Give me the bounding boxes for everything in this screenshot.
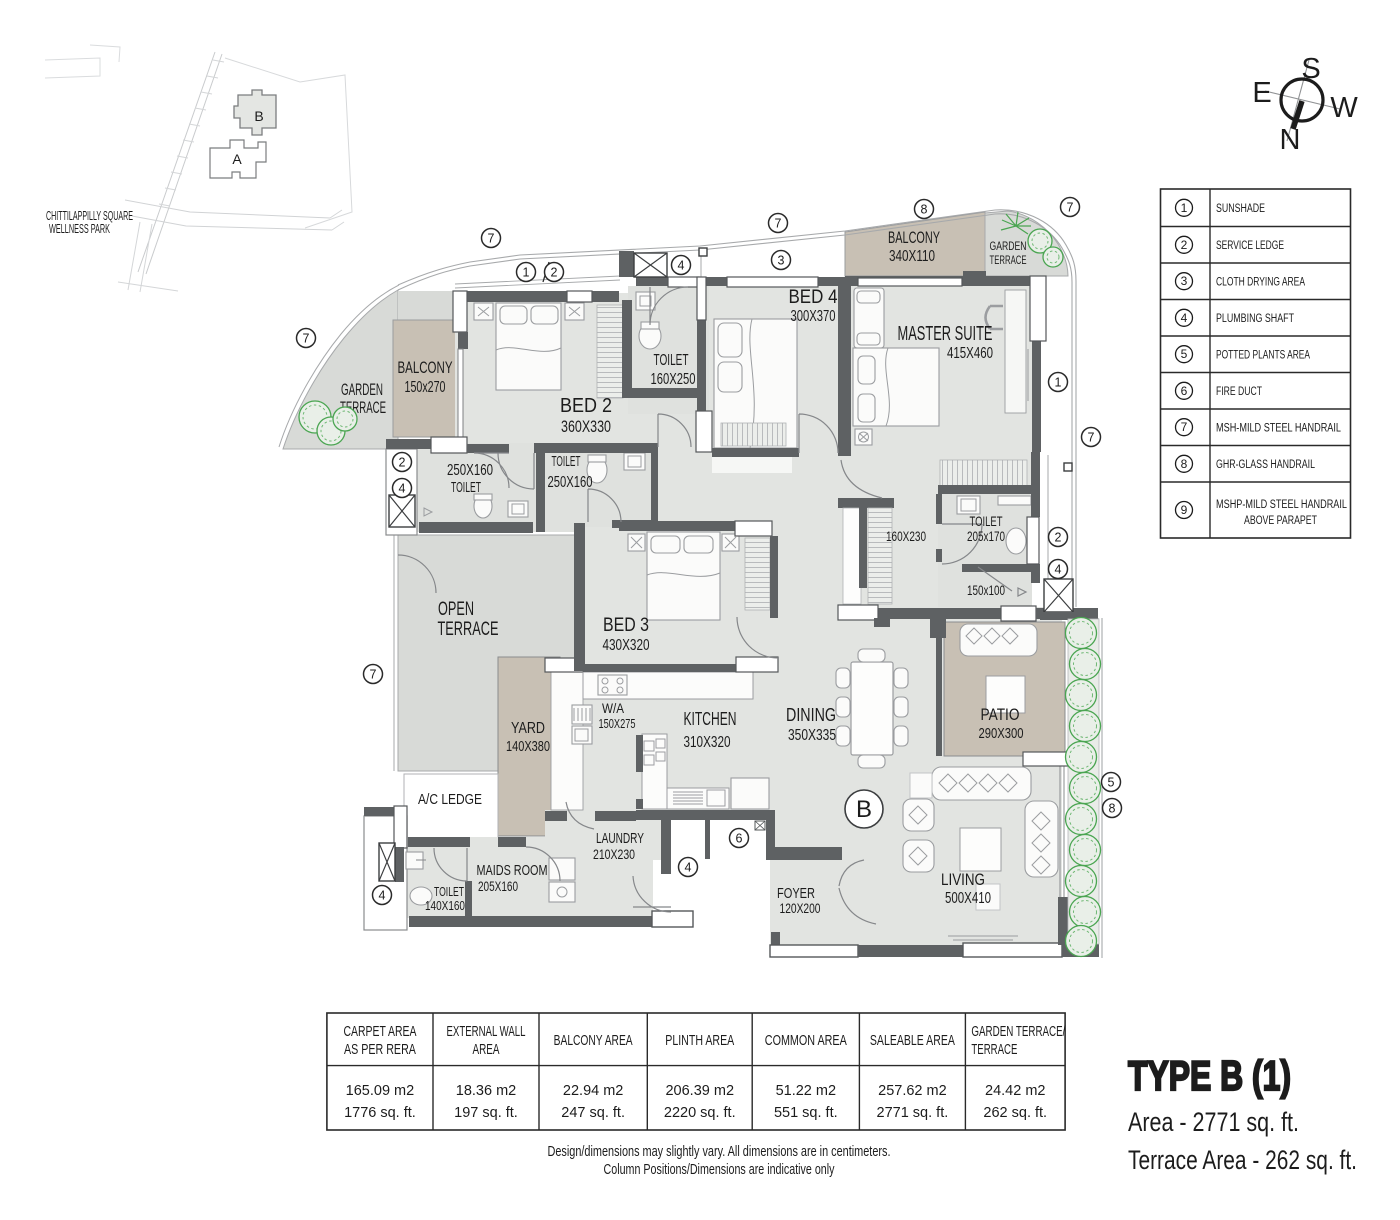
svg-text:BALCONY AREA: BALCONY AREA	[554, 1033, 633, 1049]
svg-text:140X160: 140X160	[425, 899, 465, 913]
svg-text:150x100: 150x100	[967, 583, 1005, 598]
svg-text:7: 7	[370, 667, 377, 681]
svg-text:SUNSHADE: SUNSHADE	[1216, 201, 1265, 215]
svg-text:BALCONY: BALCONY	[888, 229, 940, 247]
svg-text:Design/dimensions may slightly: Design/dimensions may slightly vary. All…	[548, 1143, 891, 1160]
svg-text:PLINTH AREA: PLINTH AREA	[665, 1033, 734, 1049]
svg-text:FIRE DUCT: FIRE DUCT	[1216, 384, 1262, 398]
svg-text:SERVICE LEDGE: SERVICE LEDGE	[1216, 238, 1284, 252]
svg-text:GARDEN TERRACE/: GARDEN TERRACE/	[971, 1024, 1066, 1040]
svg-text:430X320: 430X320	[603, 637, 650, 654]
svg-text:2: 2	[1055, 530, 1062, 544]
svg-text:197 sq. ft.: 197 sq. ft.	[454, 1105, 518, 1121]
svg-text:1776 sq. ft.: 1776 sq. ft.	[344, 1105, 416, 1121]
svg-text:LIVING: LIVING	[941, 870, 985, 889]
svg-text:E: E	[1252, 77, 1271, 109]
svg-text:257.62 m2: 257.62 m2	[878, 1083, 947, 1099]
svg-text:PATIO: PATIO	[981, 705, 1020, 724]
svg-text:POTTED PLANTS AREA: POTTED PLANTS AREA	[1216, 347, 1311, 361]
svg-text:S: S	[1301, 53, 1320, 85]
svg-text:7: 7	[1088, 430, 1095, 444]
svg-text:W/A: W/A	[602, 700, 625, 716]
svg-text:TOILET: TOILET	[552, 454, 581, 470]
svg-text:350X335: 350X335	[788, 727, 836, 744]
svg-text:310X320: 310X320	[684, 734, 731, 751]
svg-text:TERRACE: TERRACE	[971, 1042, 1017, 1058]
svg-text:1: 1	[1055, 375, 1062, 389]
svg-text:5: 5	[1181, 347, 1188, 361]
svg-text:7: 7	[303, 331, 310, 345]
svg-text:GARDEN: GARDEN	[341, 381, 383, 399]
svg-text:TERRACE: TERRACE	[990, 253, 1027, 267]
svg-text:MAIDS ROOM: MAIDS ROOM	[477, 862, 548, 879]
svg-text:3: 3	[1181, 274, 1188, 288]
svg-text:TERRACE: TERRACE	[438, 619, 499, 640]
svg-text:Area - 2771 sq. ft.: Area - 2771 sq. ft.	[1128, 1107, 1299, 1137]
svg-text:AS PER RERA: AS PER RERA	[344, 1042, 416, 1058]
svg-text:GARDEN: GARDEN	[990, 239, 1027, 253]
svg-text:4: 4	[678, 258, 685, 272]
svg-text:6: 6	[1181, 384, 1188, 398]
svg-text:SALEABLE AREA: SALEABLE AREA	[870, 1033, 955, 1049]
svg-text:1: 1	[1181, 201, 1188, 215]
svg-text:FOYER: FOYER	[777, 886, 815, 902]
svg-text:MSH-MILD STEEL HANDRAIL: MSH-MILD STEEL HANDRAIL	[1216, 420, 1341, 434]
svg-text:W: W	[1330, 92, 1358, 124]
svg-text:B: B	[254, 108, 263, 124]
svg-text:TOILET: TOILET	[654, 352, 689, 369]
svg-text:4: 4	[1181, 311, 1188, 325]
svg-text:7: 7	[488, 231, 495, 245]
svg-text:210X230: 210X230	[593, 847, 635, 862]
svg-text:7: 7	[775, 216, 782, 230]
svg-text:24.42 m2: 24.42 m2	[985, 1083, 1045, 1099]
svg-text:CHITTILAPPILLY SQUARE: CHITTILAPPILLY SQUARE	[46, 209, 133, 223]
svg-text:EXTERNAL WALL: EXTERNAL WALL	[447, 1024, 526, 1040]
svg-text:PLUMBING SHAFT: PLUMBING SHAFT	[1216, 311, 1294, 325]
svg-text:2220 sq. ft.: 2220 sq. ft.	[664, 1105, 736, 1121]
svg-text:9: 9	[1181, 503, 1188, 517]
svg-text:120X200: 120X200	[780, 901, 821, 916]
svg-text:GHR-GLASS HANDRAIL: GHR-GLASS HANDRAIL	[1216, 457, 1315, 471]
svg-text:205X160: 205X160	[478, 879, 518, 894]
svg-text:8: 8	[1181, 457, 1188, 471]
svg-text:CLOTH DRYING AREA: CLOTH DRYING AREA	[1216, 274, 1306, 288]
svg-text:551 sq. ft.: 551 sq. ft.	[774, 1105, 838, 1121]
svg-text:N: N	[1280, 124, 1301, 156]
svg-text:1: 1	[523, 265, 530, 279]
svg-text:8: 8	[1109, 801, 1116, 815]
svg-text:4: 4	[685, 860, 692, 874]
svg-text:6: 6	[736, 831, 743, 845]
svg-text:WELLNESS PARK: WELLNESS PARK	[49, 222, 110, 236]
svg-text:TYPE B (1): TYPE B (1)	[1128, 1052, 1291, 1099]
svg-text:18.36 m2: 18.36 m2	[456, 1083, 516, 1099]
svg-text:160X250: 160X250	[651, 371, 696, 388]
svg-text:Column Positions/Dimensions ar: Column Positions/Dimensions are indicati…	[604, 1161, 835, 1178]
svg-text:250X160: 250X160	[548, 474, 593, 491]
svg-text:KITCHEN: KITCHEN	[684, 709, 737, 729]
svg-text:340X110: 340X110	[889, 248, 935, 265]
svg-text:7: 7	[1181, 420, 1188, 434]
svg-text:22.94 m2: 22.94 m2	[563, 1083, 623, 1099]
svg-text:TOILET: TOILET	[970, 513, 1003, 529]
svg-text:165.09 m2: 165.09 m2	[346, 1083, 415, 1099]
svg-text:A: A	[232, 151, 242, 167]
svg-text:290X300: 290X300	[979, 725, 1024, 742]
svg-text:MASTER SUITE: MASTER SUITE	[898, 323, 993, 345]
svg-text:206.39 m2: 206.39 m2	[665, 1083, 734, 1099]
svg-text:360X330: 360X330	[561, 417, 611, 436]
svg-text:4: 4	[379, 888, 386, 902]
svg-text:3: 3	[778, 253, 785, 267]
svg-text:2771 sq. ft.: 2771 sq. ft.	[877, 1105, 949, 1121]
svg-text:250X160: 250X160	[447, 462, 493, 479]
svg-text:BED 4: BED 4	[789, 287, 838, 308]
svg-text:B: B	[856, 796, 872, 823]
svg-text:7: 7	[1067, 200, 1074, 214]
svg-text:LAUNDRY: LAUNDRY	[596, 830, 644, 847]
svg-text:YARD: YARD	[511, 720, 545, 737]
svg-text:2: 2	[399, 455, 406, 469]
svg-text:2: 2	[551, 265, 558, 279]
svg-text:262 sq. ft.: 262 sq. ft.	[983, 1105, 1047, 1121]
svg-text:415X460: 415X460	[947, 345, 993, 362]
svg-text:140X380: 140X380	[506, 739, 550, 755]
svg-text:BED 2: BED 2	[560, 395, 612, 417]
svg-text:150x270: 150x270	[405, 379, 446, 396]
svg-text:4: 4	[399, 481, 406, 495]
svg-text:8: 8	[921, 202, 928, 216]
svg-text:2: 2	[1181, 238, 1188, 252]
svg-text:AREA: AREA	[473, 1042, 500, 1058]
svg-text:TOILET: TOILET	[451, 480, 481, 496]
svg-text:300X370: 300X370	[791, 308, 836, 325]
svg-text:BED 3: BED 3	[603, 615, 649, 636]
svg-text:5: 5	[1108, 775, 1115, 789]
svg-text:CARPET AREA: CARPET AREA	[343, 1024, 416, 1040]
svg-text:51.22 m2: 51.22 m2	[776, 1083, 836, 1099]
svg-text:BALCONY: BALCONY	[398, 358, 453, 377]
svg-text:COMMON AREA: COMMON AREA	[765, 1033, 847, 1049]
svg-text:DINING: DINING	[786, 705, 836, 725]
svg-text:A/C LEDGE: A/C LEDGE	[418, 791, 482, 808]
svg-text:OPEN: OPEN	[438, 599, 474, 620]
svg-text:ABOVE PARAPET: ABOVE PARAPET	[1244, 513, 1317, 527]
svg-text:4: 4	[1055, 562, 1062, 576]
svg-text:150X275: 150X275	[599, 717, 636, 731]
svg-text:205x170: 205x170	[967, 529, 1005, 544]
svg-text:500X410: 500X410	[945, 890, 991, 907]
svg-text:160X230: 160X230	[886, 529, 926, 544]
svg-text:Terrace Area - 262 sq. ft.: Terrace Area - 262 sq. ft.	[1128, 1145, 1357, 1175]
svg-text:MSHP-MILD STEEL HANDRAIL: MSHP-MILD STEEL HANDRAIL	[1216, 497, 1347, 511]
svg-text:247 sq. ft.: 247 sq. ft.	[561, 1105, 625, 1121]
svg-text:TOILET: TOILET	[434, 884, 464, 899]
